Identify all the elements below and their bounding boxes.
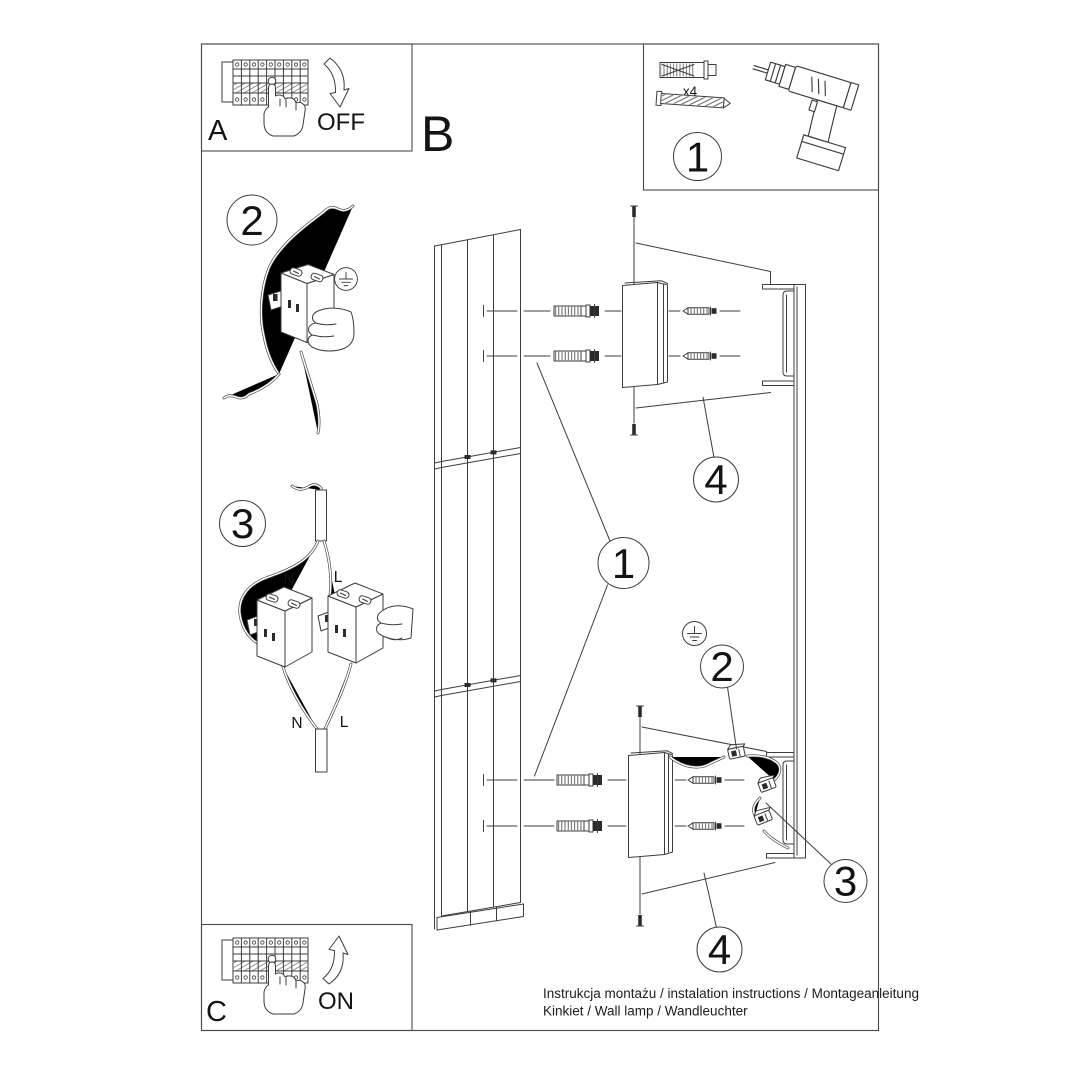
top-bracket [623, 206, 771, 458]
breaker-panel-icon [222, 60, 308, 105]
step-2-callout: 2 [227, 195, 277, 245]
step-2-number: 2 [240, 197, 263, 244]
power-off-label: OFF [317, 109, 365, 136]
live-label-top: L [334, 569, 343, 586]
wall-plug-icon [660, 61, 716, 79]
fixing-screw-icon [683, 352, 717, 360]
wall-plug-icon [554, 305, 599, 318]
bottom-bracket-callout: 4 [697, 926, 742, 973]
callout-4-bottom-number: 4 [708, 926, 731, 973]
earth-symbol-icon [683, 622, 707, 646]
arrow-down-icon [324, 58, 349, 107]
pressing-hand-icon [377, 606, 414, 640]
callout-line-4-top [703, 397, 714, 457]
section-b-label: B [421, 106, 454, 162]
callout-line-4-bottom [704, 873, 717, 928]
top-bracket-callout: 4 [694, 456, 739, 503]
callout-2-number: 2 [710, 643, 733, 690]
wiring-step-2: 2 [224, 195, 357, 433]
sheet-border [202, 44, 879, 1031]
lamp-wiring [670, 742, 788, 848]
callout-1-number: 1 [612, 540, 635, 587]
breaker-panel-icon [222, 938, 308, 983]
lamp-panel [435, 230, 524, 931]
callout-line-2 [728, 687, 737, 749]
fixing-screw-icon [688, 776, 722, 784]
wall-plug-icon [557, 820, 602, 833]
power-on-label: ON [318, 988, 354, 1015]
terminal-block-live [318, 583, 383, 663]
panel-c-label: C [206, 996, 227, 1028]
step-1-callout: 1 [674, 133, 722, 181]
wiring-callout: 3 [824, 858, 867, 905]
holding-hand-icon [308, 308, 354, 351]
step-3-number: 3 [231, 500, 254, 547]
step-3-callout: 3 [220, 500, 266, 547]
wiring-step-3: 3 N L N L [220, 485, 414, 772]
step-1-number: 1 [686, 134, 709, 181]
connector-callout: 2 [701, 643, 744, 690]
wall-plug-icon [557, 774, 602, 787]
panel-c-power-on: C ON [202, 925, 413, 1031]
drill-icon [732, 54, 864, 171]
supply-cable-bottom [316, 729, 328, 772]
exploded-view: 1 4 2 3 4 [435, 206, 868, 973]
wall-plug-icon [554, 350, 599, 363]
fixing-screw-icon [688, 822, 722, 830]
instruction-sheet: A OFF B x4 1 [0, 0, 1080, 1080]
panel-a-power-off: A OFF [202, 44, 413, 151]
footer-line-2: Kinkiet / Wall lamp / Wandleuchter [543, 1004, 748, 1019]
arrow-up-icon [323, 936, 348, 984]
lamp-panel-callout: 1 [598, 538, 649, 589]
fixing-screw-icon [683, 307, 717, 315]
supply-cable-top [292, 485, 327, 541]
bottom-bracket [629, 706, 776, 928]
earth-symbol-icon [335, 268, 358, 291]
callout-line-3 [766, 803, 831, 864]
footer-line-1: Instrukcja montażu / instalation instruc… [543, 986, 919, 1001]
callout-3-number: 3 [834, 858, 857, 905]
toolbox-panel: x4 1 [644, 44, 879, 190]
neutral-label-bottom: N [291, 715, 302, 732]
panel-a-label: A [208, 115, 228, 147]
callout-4-top-number: 4 [704, 456, 727, 503]
live-label-bottom: L [340, 714, 349, 731]
neutral-label-top: N [283, 571, 294, 588]
